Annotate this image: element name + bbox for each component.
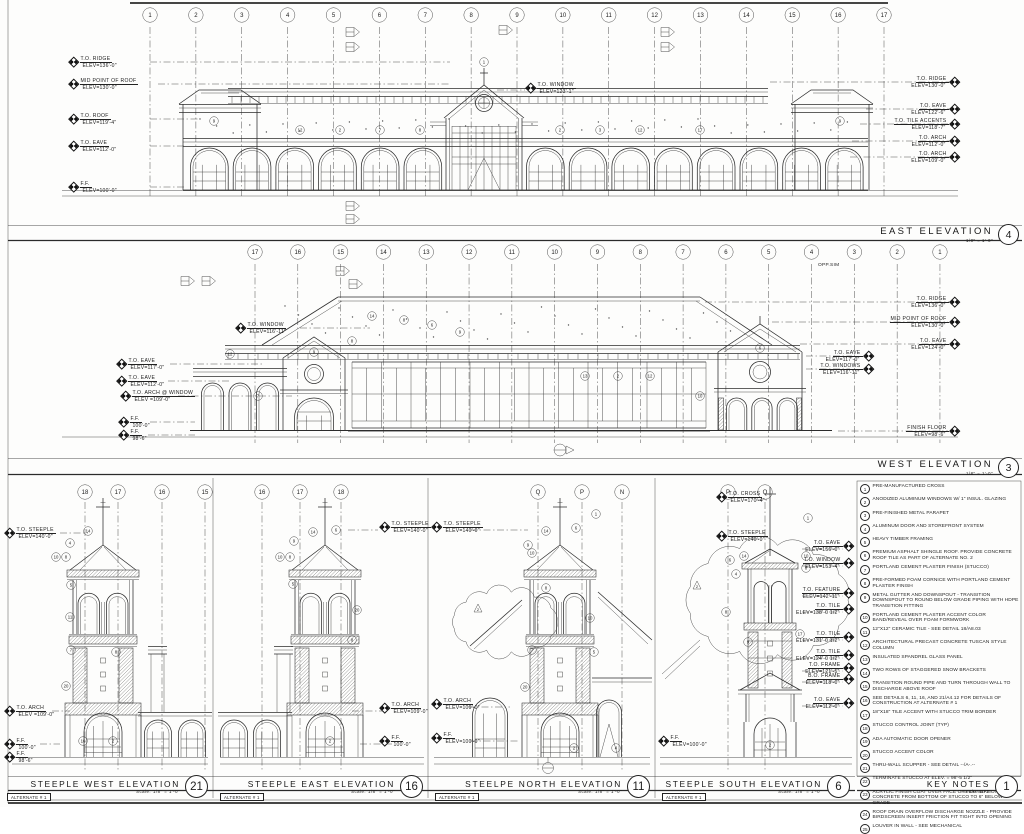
elevation-marker-icon [843, 587, 854, 598]
elevation-label-name: MID POINT OF ROOF [890, 316, 949, 323]
svg-text:2: 2 [696, 584, 699, 589]
elevation-label-name: T.O. EAVE [919, 338, 949, 345]
key-note-text: PREMIUM ASPHALT SHINGLE ROOF. PROVIDE CO… [873, 550, 1020, 561]
svg-text:12: 12 [298, 128, 303, 133]
elevation-label: T.O. WINDOWELEV=123'-1" [527, 82, 576, 95]
elevation-label-name: T.O. ROOF [80, 113, 111, 120]
svg-text:2: 2 [339, 128, 342, 133]
svg-text:16: 16 [294, 250, 301, 256]
svg-text:8: 8 [351, 339, 354, 344]
svg-text:12: 12 [651, 13, 658, 19]
elevation-label-name: T.O. RIDGE [80, 56, 113, 63]
elevation-label: FINISH FLOORELEV=98'-6" [906, 425, 958, 438]
elevation-label-value: ELEV=122'-6" [911, 110, 948, 116]
elevation-label-value: ELEV=130'-0" [80, 85, 117, 91]
svg-text:13: 13 [697, 13, 704, 19]
elevation-label: F.F.98'-6" [6, 751, 33, 764]
elevation-label-name: T.O. TILE [815, 603, 842, 610]
drawing-title: KEY NOTES [927, 779, 990, 789]
elevation-marker-icon [843, 662, 854, 673]
key-note-item: 25LOUVER IN WALL - SEE MECHANICAL [860, 824, 1019, 834]
elevation-label: T.O. EAVEELEV=156'-0" [805, 540, 852, 553]
svg-text:14: 14 [311, 530, 316, 535]
key-note-text: METAL GUTTER AND DOWNSPOUT - TRANSITION … [873, 593, 1020, 610]
elevation-label: T.O. EAVEELEV=117'-0" [826, 350, 872, 363]
svg-text:5: 5 [70, 583, 73, 588]
key-note-number: 24 [860, 810, 870, 820]
svg-text:P: P [580, 490, 584, 496]
elevation-label-name: T.O. EAVE [919, 103, 949, 110]
elevation-marker-icon [658, 735, 669, 746]
key-note-item: 1PRE-MANUFACTURED CROSS [860, 484, 1019, 494]
svg-text:9: 9 [459, 330, 462, 335]
key-note-number: 19 [860, 737, 870, 747]
svg-text:10: 10 [81, 739, 86, 744]
alternate-tag: ALTERNATE # 1 [220, 793, 264, 801]
elevation-label-value: ELEV =109'-0" [16, 712, 55, 718]
drawing-title: STEEPLE WEST ELEVATION [30, 779, 180, 789]
elevation-label-value: ELEV=112'-0" [912, 142, 949, 148]
elevation-marker-icon [949, 135, 960, 146]
key-note-text: ROOF DRAIN OVERFLOW DISCHARGE NOZZLE - P… [873, 810, 1020, 821]
elevation-marker-icon [716, 491, 727, 502]
elevation-label-value: ELEV=112'-0" [80, 147, 117, 153]
svg-text:2: 2 [895, 250, 899, 256]
elevation-label: B.O. FRAMEELEV=118'-0" [806, 673, 852, 686]
elevation-label: T.O. WINDOWSELEV=116'-11" [819, 363, 872, 376]
elevation-marker-icon [68, 78, 79, 89]
elevation-label-value: ELEV=123'-1" [537, 89, 574, 95]
key-note-number: 25 [860, 824, 870, 834]
svg-text:13: 13 [423, 250, 430, 256]
elevation-label: MID POINT OF ROOFELEV=130'-0" [70, 78, 138, 91]
elevation-marker-icon [863, 363, 874, 374]
svg-text:6: 6 [378, 13, 382, 19]
svg-text:2: 2 [573, 746, 576, 751]
elevation-marker-icon [949, 316, 960, 327]
elevation-marker-icon [525, 82, 536, 93]
drawing-scale: Scale:1/8" = 1'-0" [351, 789, 395, 794]
alternate-tag: ALTERNATE # 1 [662, 793, 706, 801]
drawing-number-bubble: 1 [995, 775, 1018, 798]
scale-value: 1/8" = 1'-0" [966, 238, 993, 243]
key-note-number: 14 [860, 668, 870, 678]
elevation-label: T.O. ARCH @ WINDOWELEV =109'-0" [122, 390, 195, 403]
svg-text:9: 9 [839, 119, 842, 124]
elevation-marker-icon [68, 181, 79, 192]
drawing-title: STEEPLE EAST ELEVATION [248, 779, 395, 789]
svg-text:2: 2 [769, 743, 772, 748]
elevation-label-name: T.O. EAVE [128, 358, 158, 365]
elevation-label: F.F.ELEV=100'-0" [433, 732, 480, 745]
scale-prefix: Scale: [351, 789, 366, 794]
elevation-label-name: T.O. ARCH [16, 705, 47, 712]
key-note-number: 7 [860, 565, 870, 575]
elevation-marker-icon [949, 338, 960, 349]
svg-text:18: 18 [338, 490, 345, 496]
key-note-text: STUCCO ACCENT COLOR [873, 750, 934, 756]
elevation-label: T.O. STEEPLEELEV=140'-0" [433, 521, 483, 534]
elevation-marker-icon [949, 296, 960, 307]
elevation-label-value: ELEV=118'-7" [912, 125, 949, 131]
elevation-marker-icon [843, 540, 854, 551]
key-note-number: 18 [860, 724, 870, 734]
svg-text:8: 8 [725, 610, 728, 615]
elevation-label-name: T.O. STEEPLE [728, 530, 768, 537]
svg-text:15: 15 [202, 490, 209, 496]
elevation-marker-icon [379, 735, 390, 746]
elevation-marker-icon [4, 751, 15, 762]
svg-text:10: 10 [588, 616, 593, 621]
elevation-label: T.O. CROSSELEV=170'-4" [718, 491, 765, 504]
elevation-label-value: ELEV=140'-0" [443, 528, 480, 534]
elevation-label-name: T.O. EAVE [813, 697, 843, 704]
key-note-text: LOUVER IN WALL - SEE MECHANICAL [873, 824, 963, 830]
elevation-label-value: ELEV=109'-0" [911, 158, 948, 164]
key-note-item: 15TRANSITION ROUND PIPE AND TURN THROUGH… [860, 681, 1019, 692]
svg-text:15: 15 [789, 13, 796, 19]
drawing-number-bubble: 16 [400, 775, 423, 798]
elevation-label-value: ELEV=109'-0" [443, 705, 480, 711]
key-note-item: 16SEE DETAILS 6, 11, 16, AND 21/A4.12 FO… [860, 696, 1019, 707]
elevation-label-value: ELEV=100'-0" [80, 188, 117, 194]
elevation-label: T.O. RIDGEELEV=136'-0" [911, 296, 958, 309]
drawing-titlebar: KEY NOTESScale:NTS1 [857, 778, 1021, 795]
elevation-label-name: MID POINT OF ROOF [80, 78, 139, 85]
key-note-text: HEAVY TIMBER FRAMING [873, 537, 934, 543]
elevation-label-name: F.F. [130, 416, 142, 423]
svg-text:4: 4 [69, 541, 72, 546]
elevation-marker-icon [843, 603, 854, 614]
elevation-label-name: T.O. ARCH [918, 151, 949, 158]
svg-text:16: 16 [159, 490, 166, 496]
svg-text:11: 11 [68, 615, 73, 620]
elevation-label: T.O. TILEELEV=138'-0 1/2" [796, 603, 852, 616]
key-note-number: 10 [860, 613, 870, 623]
svg-text:8: 8 [469, 13, 473, 19]
scale-value: 1/8" = 1'-0" [966, 471, 993, 476]
svg-text:8: 8 [403, 318, 406, 323]
elevation-label: T.O. RIDGEELEV=130'-0" [911, 76, 958, 89]
drawing-titlebar: EAST ELEVATION1/8" = 1'-0"4 [8, 227, 1022, 244]
svg-text:12: 12 [648, 374, 653, 379]
elevation-label: T.O. WINDOWELEV=116'-11" [237, 322, 286, 335]
svg-text:9: 9 [596, 250, 600, 256]
elevation-label-name: T.O. FEATURE [802, 587, 843, 594]
elevation-label: T.O. ROOFELEV=119'-4" [70, 113, 116, 126]
elevation-label-value: 100'-0" [391, 742, 411, 748]
elevation-label: T.O. ARCHELEV=109'-0" [911, 151, 958, 164]
key-note-item: 19ADA AUTOMATIC DOOR OPENER [860, 737, 1019, 747]
elevation-marker-icon [120, 390, 131, 401]
key-note-item: 10PORTLAND CEMENT PLASTER ACCENT COLOR B… [860, 613, 1019, 624]
svg-text:14: 14 [544, 529, 549, 534]
key-note-number: 17 [860, 710, 870, 720]
elevation-label-value: 98'-6" [16, 758, 33, 764]
key-note-number: 16 [860, 696, 870, 706]
key-note-number: 6 [860, 551, 870, 561]
elevation-label-name: T.O. WINDOW [247, 322, 286, 329]
drawing-scale: Scale:1/8" = 1'-0" [578, 789, 622, 794]
elevation-label-value: ELEV=136'-0" [80, 63, 117, 69]
svg-text:7: 7 [379, 128, 382, 133]
svg-text:8: 8 [639, 250, 643, 256]
elevation-marker-icon [116, 375, 127, 386]
elevation-label-value: ELEV=116'-11" [247, 329, 287, 335]
elevation-marker-icon [4, 705, 15, 716]
elevation-label-name: T.O. ARCH [391, 702, 422, 709]
key-note-text: ANODIZED ALUMINUM WINDOWS W/ 1" INSUL. G… [873, 497, 1007, 503]
elevation-marker-icon [949, 425, 960, 436]
svg-text:6: 6 [724, 250, 728, 256]
svg-text:16: 16 [835, 13, 842, 19]
elevation-label: T.O. TILEELEV=131'-0 1/2" [796, 631, 852, 644]
elevation-label-name: T.O. TILE [815, 631, 842, 638]
elevation-label-name: T.O. RIDGE [916, 76, 949, 83]
drawing-scale: Scale:1/8" = 1'-0" [136, 789, 180, 794]
elevation-label-name: T.O. WINDOWS [819, 363, 862, 370]
key-note-text: THRU-WALL SCUPPER - SEE DETAIL --/A-.-- [873, 763, 976, 769]
elevation-label: F.F.ELEV=100'-0" [660, 735, 707, 748]
svg-text:14: 14 [743, 13, 750, 19]
elevation-label: T.O. STEEPLEELEV=140'-0" [6, 527, 56, 540]
elevation-label-name: T.O. CROSS [728, 491, 763, 498]
elevation-label-name: T.O. EAVE [128, 375, 158, 382]
svg-text:5: 5 [292, 582, 295, 587]
drawing-titlebar: STEEPLE WEST ELEVATIONScale:1/8" = 1'-0"… [0, 778, 211, 795]
drawing-titlebar: STEEPLE SOUTH ELEVATIONScale:1/8" = 1'-0… [655, 778, 853, 795]
key-note-text: PRE-FINISHED METAL PARAPET [873, 511, 950, 517]
key-note-text: PRE-MANUFACTURED CROSS [873, 484, 945, 490]
svg-text:6: 6 [759, 346, 762, 351]
drawing-titlebar: STEELPE NORTH ELEVATIONScale:1/8" = 1'-0… [428, 778, 653, 795]
svg-text:20: 20 [64, 684, 69, 689]
key-note-item: 2ANODIZED ALUMINUM WINDOWS W/ 1" INSUL. … [860, 497, 1019, 507]
elevation-label-value: 98'-6" [130, 436, 147, 442]
elevation-label: T.O. ARCHELEV=109'-0" [381, 702, 428, 715]
elevation-marker-icon [863, 350, 874, 361]
svg-text:20: 20 [523, 685, 528, 690]
elevation-marker-icon [843, 631, 854, 642]
svg-text:10: 10 [278, 555, 283, 560]
elevation-label-value: ELEV=98'-6" [914, 432, 948, 438]
svg-text:N: N [620, 490, 624, 496]
key-note-number: 15 [860, 681, 870, 691]
drawing-scale: Scale:1/8" = 1'-0" [778, 789, 822, 794]
elevation-label: T.O. STEEPLEELEV=140'-0" [718, 530, 768, 543]
svg-text:10: 10 [530, 551, 535, 556]
key-note-number: 21 [860, 763, 870, 773]
key-note-item: 7PORTLAND CEMENT PLASTER FINISH (STUCCO) [860, 565, 1019, 575]
elevation-label-name: T.O. TILE [815, 649, 842, 656]
key-note-text: 12"X12" CERAMIC TILE - SEE DETAIL 18/A8.… [873, 627, 981, 633]
elevation-label-value: ELEV=100'-0" [443, 739, 480, 745]
key-note-number: 20 [860, 750, 870, 760]
elevation-label: T.O. TILEELEV=124'-0 1/2" [796, 649, 852, 662]
elevation-label-value: ELEV=109'-0" [391, 709, 428, 715]
key-note-item: 5HEAVY TIMBER FRAMING [860, 537, 1019, 547]
elevation-label-value: ELEV=100'-0" [670, 742, 707, 748]
elevation-label-value: ELEV=140'-0" [16, 534, 53, 540]
svg-text:6: 6 [431, 323, 434, 328]
drawing-title: WEST ELEVATION [878, 459, 993, 470]
elevation-label: T.O. RIDGEELEV=136'-0" [70, 56, 117, 69]
svg-text:8: 8 [65, 555, 68, 560]
key-note-item: 9METAL GUTTER AND DOWNSPOUT - TRANSITION… [860, 593, 1019, 610]
elevation-label: F.F.98'-6" [120, 429, 147, 442]
elevation-label-name: T.O. RIDGE [916, 296, 949, 303]
svg-text:12: 12 [466, 250, 473, 256]
svg-text:8: 8 [289, 555, 292, 560]
elevation-label-name: T.O. STEEPLE [391, 521, 431, 528]
elevation-marker-icon [431, 698, 442, 709]
elevation-label: T.O. EAVEELEV=122'-6" [911, 103, 958, 116]
elevation-label-name: T.O. STEEPLE [443, 521, 483, 528]
svg-text:1: 1 [938, 250, 942, 256]
svg-text:4: 4 [286, 13, 290, 19]
svg-text:8: 8 [419, 128, 422, 133]
svg-text:8: 8 [545, 586, 548, 591]
elevation-marker-icon [379, 702, 390, 713]
svg-text:9: 9 [515, 13, 519, 19]
key-notes-panel: 1PRE-MANUFACTURED CROSS2ANODIZED ALUMINU… [860, 484, 1019, 774]
key-note-text: ALUMINUM DOOR AND STOREFRONT SYSTEM [873, 524, 984, 530]
elevation-label: T.O. TILE ACCENTSELEV=118'-7" [894, 118, 959, 131]
key-note-text: STUCCO CONTROL JOINT (TYP) [873, 723, 949, 729]
scale-value: 1/8" = 1'-0" [153, 789, 180, 794]
elevation-marker-icon [949, 118, 960, 129]
key-note-item: 12ARCHITECTURAL PRECAST CONCRETE TUSCAN … [860, 640, 1019, 651]
svg-text:3: 3 [853, 250, 857, 256]
svg-text:2: 2 [477, 607, 480, 612]
drawing-scale: Scale:NTS [963, 789, 990, 794]
elevation-label: T.O. EAVEELEV=112'-0" [118, 375, 164, 388]
svg-text:8: 8 [115, 650, 118, 655]
scale-value: 1/8" = 1'-0" [795, 789, 822, 794]
svg-text:5: 5 [767, 250, 771, 256]
svg-text:12: 12 [228, 352, 233, 357]
svg-text:10: 10 [560, 13, 567, 19]
svg-text:1: 1 [148, 13, 152, 19]
elevation-label: T.O. ARCHELEV=109'-0" [433, 698, 480, 711]
elevation-label-value: ELEV=119'-4" [80, 120, 117, 126]
key-note-item: 6PREMIUM ASPHALT SHINGLE ROOF. PROVIDE C… [860, 550, 1019, 561]
drawing-number-bubble: 4 [998, 224, 1019, 245]
elevation-label-name: F.F. [80, 181, 92, 188]
elevation-label-name: T.O. WINDOW [803, 557, 842, 564]
drawing-titlebar: STEEPLE EAST ELEVATIONScale:1/8" = 1'-0"… [213, 778, 426, 795]
scale-value: 1/8" = 1'-0" [368, 789, 395, 794]
elevation-label-name: F.F. [16, 751, 28, 758]
elevation-sheet: 1234567891011121314151617191227823121791… [0, 0, 1024, 807]
key-note-item: 13INSULATED SPANDREL GLASS PANEL [860, 655, 1019, 665]
elevation-label-name: T.O. EAVE [813, 540, 843, 547]
elevation-label: T.O. WINDOWELEV=153'-4" [803, 557, 852, 570]
elevation-label: T.O. EAVEELEV=112'-0" [70, 140, 116, 153]
elevation-label-name: T.O. WINDOW [537, 82, 576, 89]
key-note-number: 2 [860, 497, 870, 507]
elevation-marker-icon [843, 557, 854, 568]
svg-text:11: 11 [509, 250, 516, 256]
elevation-marker-icon [843, 697, 854, 708]
elevation-marker-icon [431, 521, 442, 532]
svg-text:4: 4 [810, 250, 814, 256]
svg-text:17: 17 [115, 490, 122, 496]
elevation-marker-icon [68, 56, 79, 67]
svg-text:7: 7 [70, 648, 73, 653]
svg-text:Q: Q [536, 490, 541, 496]
key-note-text: PORTLAND CEMENT PLASTER ACCENT COLOR BAN… [873, 613, 1020, 624]
elevation-label: MID POINT OF ROOFELEV=130'-0" [890, 316, 958, 329]
svg-text:1: 1 [595, 512, 598, 517]
elevation-marker-icon [235, 322, 246, 333]
alternate-tag: ALTERNATE # 1 [7, 793, 51, 801]
key-note-item: 8PRE-FORMED FOAM CORNICE WITH PORTLAND C… [860, 578, 1019, 589]
svg-text:14: 14 [380, 250, 387, 256]
elevation-label-value: ELEV=138'-0 1/2" [796, 610, 843, 616]
elevation-label-value: ELEV=130'-0" [911, 323, 948, 329]
svg-text:2: 2 [329, 739, 332, 744]
svg-text:4: 4 [735, 572, 738, 577]
svg-text:10: 10 [54, 555, 59, 560]
key-note-text: SEE DETAILS 6, 11, 16, AND 21/A4.12 FOR … [873, 696, 1020, 707]
elevation-label: T.O. EAVEELEV=112'-0" [806, 697, 852, 710]
elevation-label-name: T.O. ARCH @ WINDOW [132, 390, 196, 397]
key-note-number: 12 [860, 640, 870, 650]
key-note-number: 9 [860, 593, 870, 603]
key-note-item: 1112"X12" CERAMIC TILE - SEE DETAIL 18/A… [860, 627, 1019, 637]
key-note-text: TWO ROWS OF STAGGERED SNOW BRACKETS [873, 668, 986, 674]
elevation-marker-icon [716, 530, 727, 541]
svg-text:17: 17 [297, 490, 304, 496]
elevation-label-name: F.F. [391, 735, 403, 742]
svg-text:5: 5 [332, 13, 336, 19]
svg-text:4: 4 [615, 746, 618, 751]
elevation-marker-icon [431, 732, 442, 743]
svg-text:6: 6 [335, 528, 338, 533]
key-note-number: 8 [860, 578, 870, 588]
elevation-label-value: ELEV=112'-0" [806, 704, 843, 710]
svg-text:13: 13 [583, 374, 588, 379]
drawing-title: STEELPE NORTH ELEVATION [465, 779, 622, 789]
key-note-number: 3 [860, 511, 870, 521]
svg-text:12: 12 [638, 128, 643, 133]
key-note-item: 18STUCCO CONTROL JOINT (TYP) [860, 723, 1019, 733]
svg-text:7: 7 [424, 13, 428, 19]
key-note-item: 21THRU-WALL SCUPPER - SEE DETAIL --/A-.-… [860, 763, 1019, 773]
elevation-label-value: ELEV=131'-0 1/2" [796, 638, 843, 644]
svg-text:14: 14 [86, 529, 91, 534]
key-note-item: 1718"X18" TILE ACCENT WITH STUCCO TRIM B… [860, 710, 1019, 720]
elevation-marker-icon [68, 113, 79, 124]
elevation-label-name: F.F. [130, 429, 142, 436]
svg-text:10: 10 [698, 394, 703, 399]
elevation-label-name: F.F. [16, 738, 28, 745]
key-note-item: 24ROOF DRAIN OVERFLOW DISCHARGE NOZZLE -… [860, 810, 1019, 821]
svg-text:6: 6 [575, 526, 578, 531]
key-note-number: 5 [860, 537, 870, 547]
elevation-label-name: T.O. EAVE [80, 140, 110, 147]
svg-text:6: 6 [729, 558, 732, 563]
key-note-text: PRE-FORMED FOAM CORNICE WITH PORTLAND CE… [873, 578, 1020, 589]
opp-sim-note: OPP.SIM [818, 263, 839, 268]
elevation-label: T.O. ARCHELEV =109'-0" [6, 705, 54, 718]
drawing-number-bubble: 6 [827, 775, 850, 798]
drawing-title: STEEPLE SOUTH ELEVATION [665, 779, 822, 789]
scale-value: NTS [980, 789, 990, 794]
drawing-number-bubble: 21 [185, 775, 208, 798]
svg-text:9: 9 [293, 539, 296, 544]
